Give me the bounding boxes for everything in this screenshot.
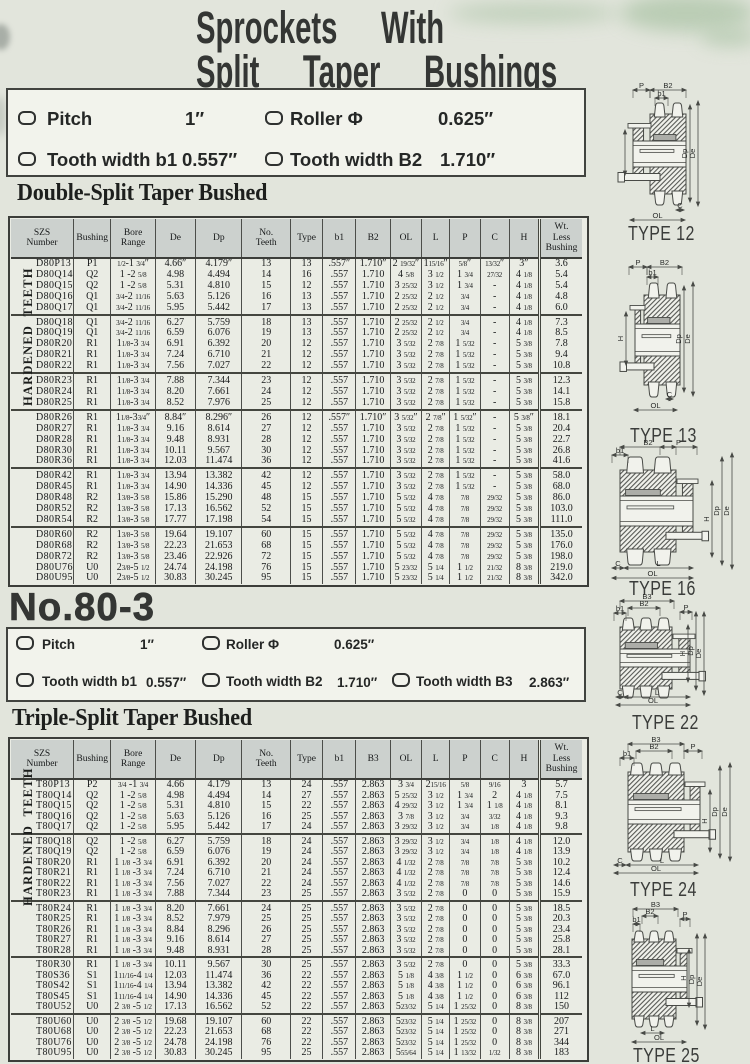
svg-text:P: P [639, 81, 644, 90]
svg-text:De: De [722, 506, 731, 516]
svg-text:B2: B2 [660, 258, 669, 267]
svg-text:L: L [650, 1024, 654, 1033]
svg-text:b1: b1 [657, 89, 665, 98]
svg-text:B2: B2 [643, 438, 652, 447]
svg-text:OL: OL [654, 1033, 664, 1042]
svg-text:B2: B2 [639, 599, 648, 608]
svg-text:De: De [688, 149, 697, 159]
svg-text:De: De [720, 807, 729, 817]
svg-text:H: H [616, 336, 625, 341]
svg-text:P: P [683, 603, 688, 612]
svg-text:L: L [656, 559, 660, 568]
svg-text:H: H [700, 818, 709, 823]
svg-text:b1: b1 [616, 604, 624, 613]
svg-text:P: P [690, 742, 695, 751]
svg-text:B2: B2 [649, 742, 658, 751]
svg-text:b1: b1 [616, 446, 624, 455]
svg-text:P: P [635, 258, 640, 267]
svg-text:b1: b1 [632, 915, 640, 924]
svg-text:OL: OL [648, 696, 658, 705]
svg-text:C: C [617, 688, 623, 697]
svg-text:Dp: Dp [710, 807, 719, 817]
svg-text:H: H [702, 516, 711, 521]
svg-text:Dp: Dp [712, 506, 721, 516]
svg-text:Dp: Dp [674, 334, 683, 344]
svg-text:C: C [617, 856, 623, 865]
svg-text:P: P [682, 910, 687, 919]
svg-text:C: C [667, 390, 673, 399]
svg-text:B2: B2 [645, 907, 654, 916]
svg-text:P: P [676, 438, 681, 447]
svg-text:OL: OL [651, 864, 661, 873]
svg-text:C: C [677, 201, 683, 210]
svg-text:OL: OL [650, 401, 660, 410]
svg-text:De: De [683, 334, 692, 344]
svg-text:C: C [615, 559, 621, 568]
svg-text:OL: OL [652, 211, 662, 220]
svg-text:De: De [694, 649, 703, 659]
svg-text:De: De [695, 977, 704, 987]
svg-text:b1: b1 [623, 749, 631, 758]
svg-text:b1: b1 [648, 268, 656, 277]
